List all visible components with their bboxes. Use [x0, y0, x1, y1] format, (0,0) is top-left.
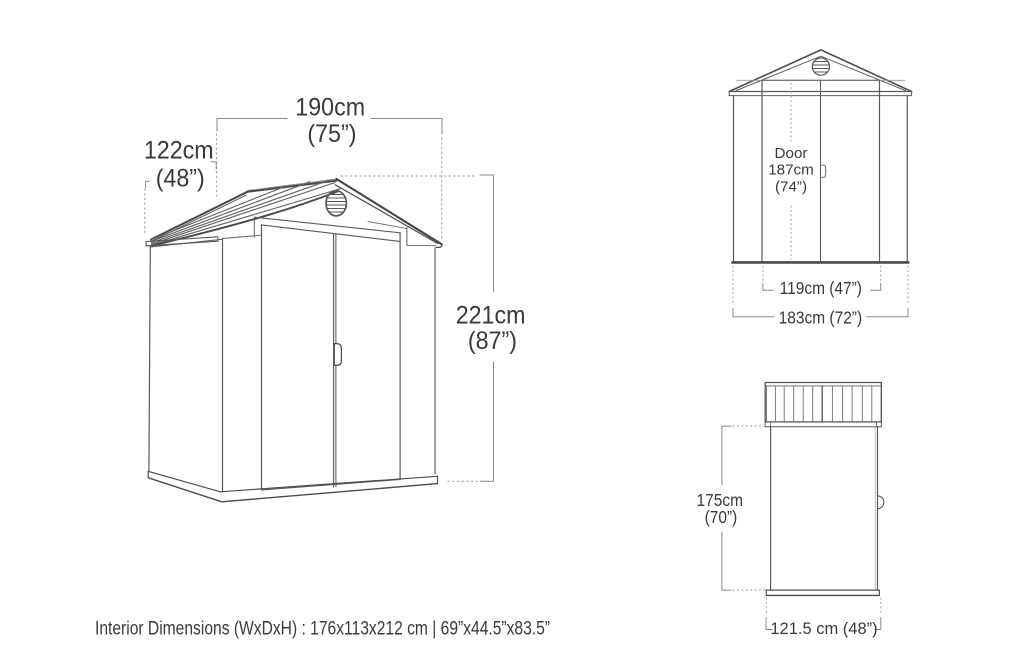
svg-text:187cm: 187cm [768, 162, 814, 179]
svg-text:(87”): (87”) [468, 327, 517, 355]
svg-text:(48”): (48”) [156, 165, 205, 193]
svg-text:121.5 cm (48”): 121.5 cm (48”) [770, 620, 877, 638]
svg-text:221cm: 221cm [456, 302, 526, 330]
svg-text:(74”): (74”) [775, 178, 807, 195]
svg-text:(70”): (70”) [705, 507, 738, 527]
svg-text:183cm (72”): 183cm (72”) [779, 308, 862, 328]
svg-text:122cm: 122cm [144, 137, 214, 165]
svg-text:119cm (47”): 119cm (47”) [780, 278, 862, 298]
svg-text:Interior Dimensions (WxDxH) :: Interior Dimensions (WxDxH) : 176x113x21… [95, 617, 550, 639]
svg-text:(75”): (75”) [307, 120, 356, 148]
svg-text:190cm: 190cm [295, 94, 365, 122]
svg-text:Door: Door [775, 145, 808, 162]
